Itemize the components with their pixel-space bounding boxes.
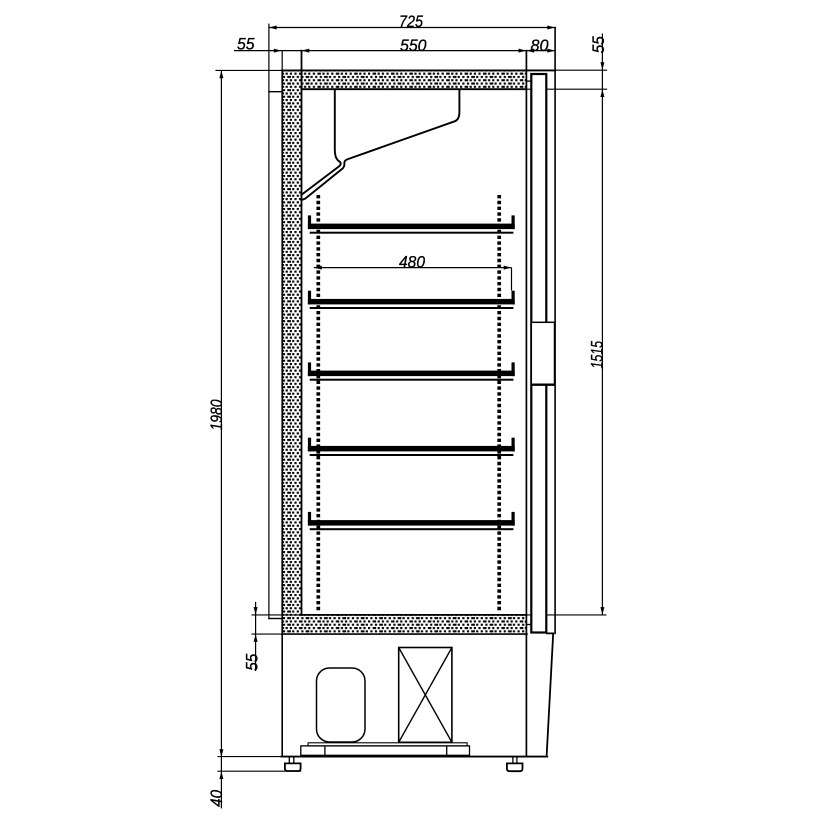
svg-text:80: 80 [531, 37, 550, 55]
svg-text:725: 725 [399, 13, 424, 31]
svg-text:55: 55 [589, 36, 608, 53]
svg-text:550: 550 [400, 37, 427, 55]
svg-text:55: 55 [237, 36, 255, 54]
svg-text:40: 40 [207, 789, 226, 806]
svg-text:480: 480 [399, 254, 426, 272]
svg-text:1980: 1980 [207, 399, 226, 430]
svg-text:1515: 1515 [588, 341, 607, 369]
svg-text:55: 55 [243, 653, 262, 670]
